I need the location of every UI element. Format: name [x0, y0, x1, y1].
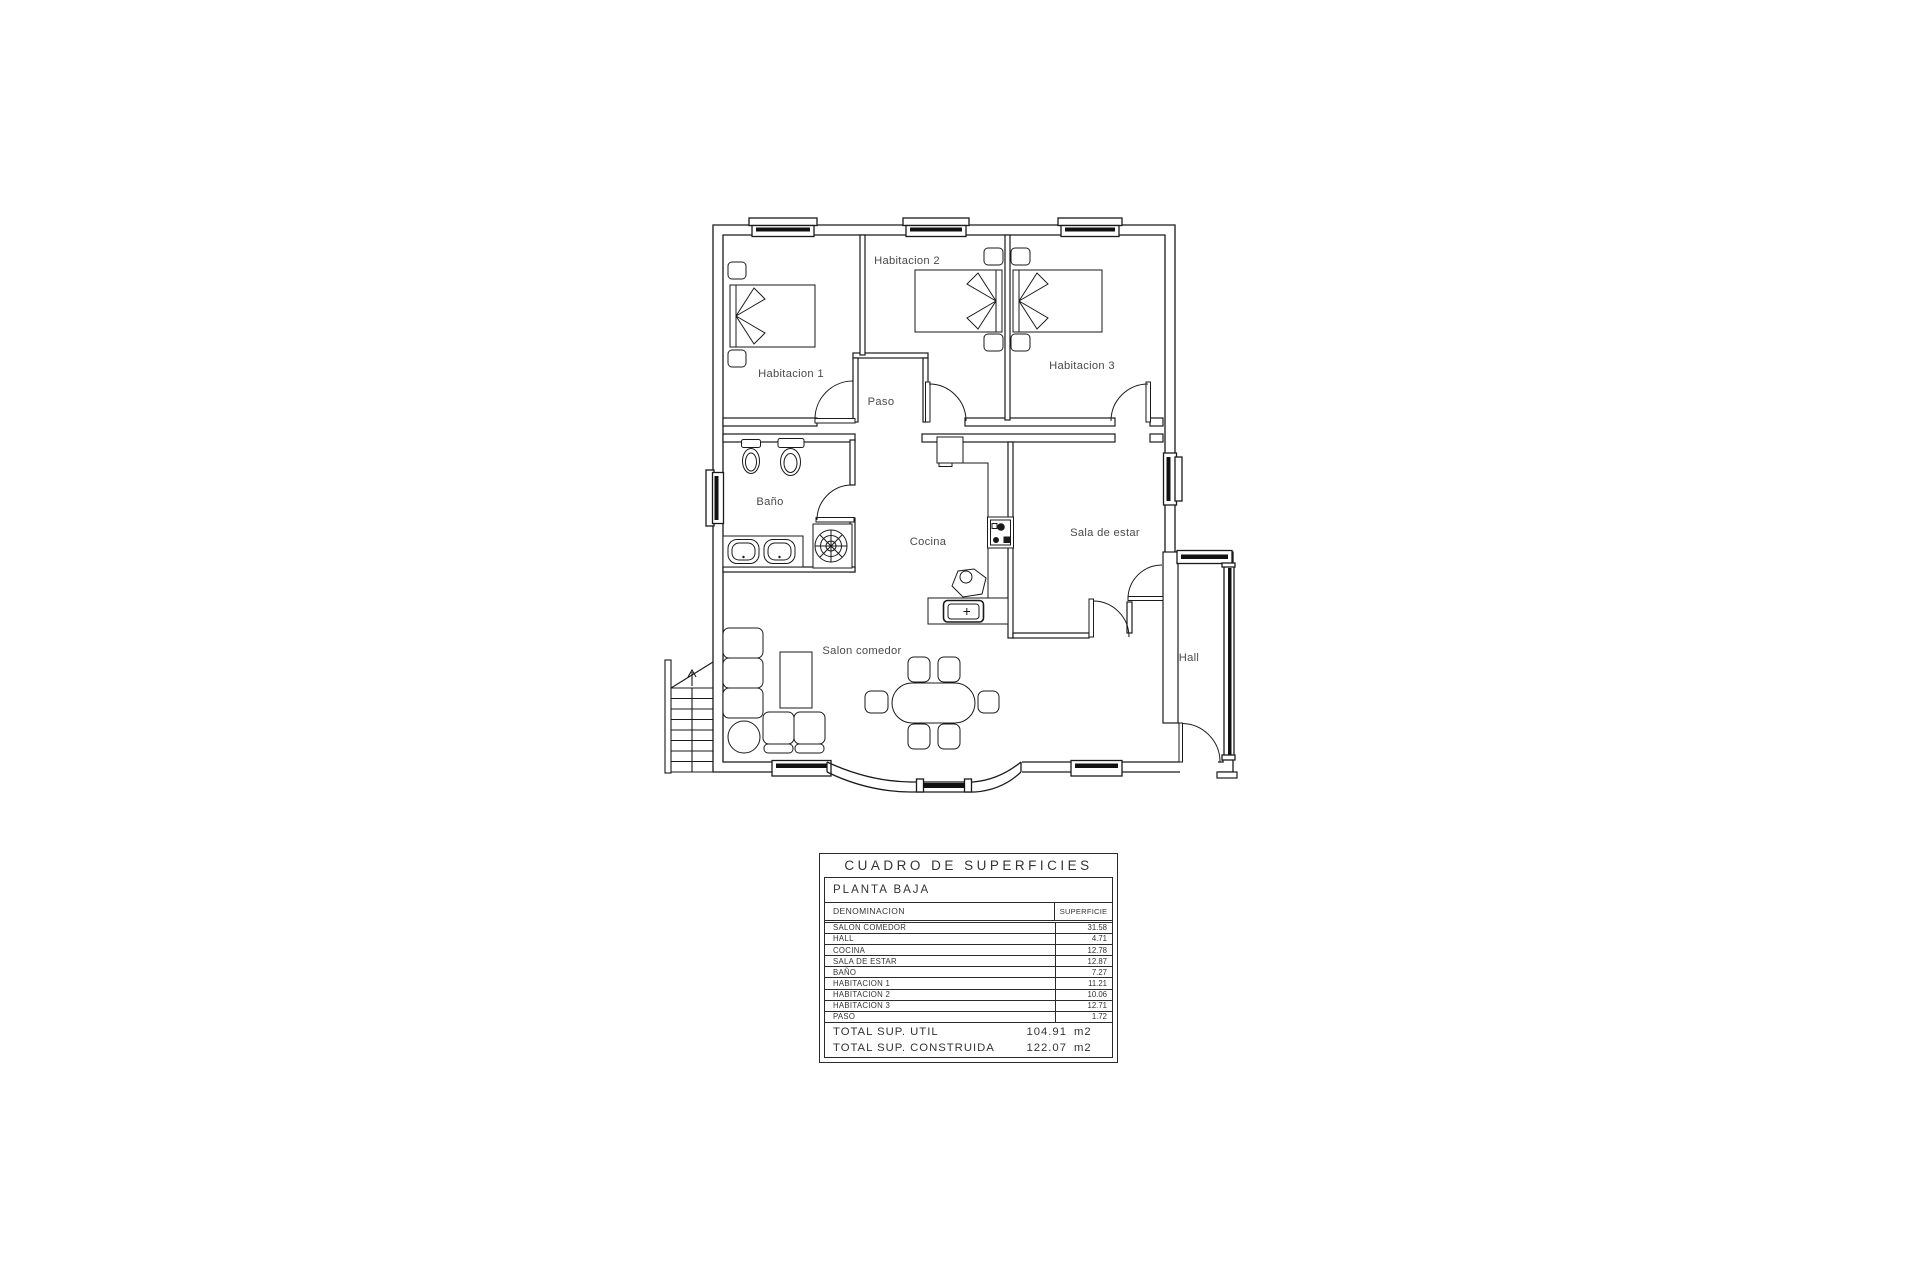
nightstand [728, 262, 746, 279]
chair [865, 691, 888, 713]
surface-row-name: PASO [825, 1012, 1055, 1022]
surface-row-name: HABITACION 1 [825, 978, 1055, 988]
label-habitacion3: Habitacion 3 [1049, 360, 1115, 372]
page: Habitacion 1 Habitacion 2 Habitacion 3 P… [0, 0, 1920, 1280]
window-hall-right [1222, 563, 1235, 760]
nightstand [984, 248, 1003, 265]
nightstand [984, 334, 1003, 351]
total-util: TOTAL SUP. UTIL 104.91 m2 [833, 1024, 1104, 1040]
surface-table: CUADRO DE SUPERFICIES PLANTA BAJA DENOMI… [819, 853, 1118, 1063]
label-cocina: Cocina [910, 536, 947, 548]
sink-counter [723, 536, 803, 567]
fridge-icon [937, 437, 963, 467]
surface-row-value: 11.21 [1055, 978, 1112, 988]
dining-table [892, 683, 975, 723]
bed-habitacion1 [728, 262, 815, 367]
surface-row: HABITACION 111.21 [825, 978, 1112, 989]
surface-row-name: HABITACION 3 [825, 1001, 1055, 1011]
chair [978, 691, 999, 713]
surface-row-value: 12.71 [1055, 1001, 1112, 1011]
surface-row: BAÑO7.27 [825, 967, 1112, 978]
door-entrance [1179, 723, 1220, 762]
door-sala-hall [1128, 565, 1163, 601]
surface-row-name: SALA DE ESTAR [825, 956, 1055, 966]
surface-row-value: 7.27 [1055, 967, 1112, 977]
column-superficie: SUPERFICIE [1054, 903, 1112, 920]
surface-table-body: PLANTA BAJA DENOMINACION SUPERFICIE SALO… [824, 877, 1113, 1058]
surface-table-title: CUADRO DE SUPERFICIES [820, 854, 1117, 877]
surface-table-totals: TOTAL SUP. UTIL 104.91 m2 TOTAL SUP. CON… [825, 1023, 1112, 1057]
chair [908, 724, 930, 749]
column-denominacion: DENOMINACION [825, 903, 1054, 920]
surface-row: COCINA12.78 [825, 945, 1112, 956]
surface-table-rows: SALON COMEDOR31.58HALL4.71COCINA12.78SAL… [825, 923, 1112, 1023]
door-bano [816, 485, 854, 522]
door-habitacion2 [926, 382, 967, 422]
label-sala: Sala de estar [1070, 527, 1140, 539]
nightstand [1011, 334, 1030, 351]
kitchen-fixtures [928, 437, 1014, 624]
kitchen-sink-icon [928, 569, 1008, 624]
door-habitacion3 [1111, 382, 1151, 422]
ottoman [728, 721, 760, 753]
window-top-1 [749, 218, 817, 237]
floor-plan: Habitacion 1 Habitacion 2 Habitacion 3 P… [0, 0, 1920, 1280]
total-construida-label: TOTAL SUP. CONSTRUIDA [833, 1042, 1013, 1054]
surface-row-name: BAÑO [825, 967, 1055, 977]
surface-row-name: HABITACION 2 [825, 990, 1055, 1000]
window-hall-top [1177, 551, 1232, 564]
surface-row: SALA DE ESTAR12.87 [825, 956, 1112, 967]
surface-row-name: HALL [825, 934, 1055, 944]
total-util-label: TOTAL SUP. UTIL [833, 1026, 1013, 1038]
label-paso: Paso [868, 396, 895, 408]
total-construida-unit: m2 [1067, 1042, 1104, 1054]
surface-table-header: DENOMINACION SUPERFICIE [825, 903, 1112, 923]
shower-icon [813, 524, 852, 568]
window-bottom-left [772, 761, 831, 777]
door-habitacion1 [815, 381, 855, 423]
surface-row-value: 31.58 [1055, 923, 1112, 933]
surface-row: PASO1.72 [825, 1012, 1112, 1023]
door-salon-sala [1089, 599, 1129, 637]
label-hall: Hall [1179, 652, 1199, 664]
bidet-icon [778, 439, 804, 476]
stairs-arrow-icon [688, 670, 696, 686]
label-habitacion1: Habitacion 1 [758, 368, 824, 380]
surface-row: SALON COMEDOR31.58 [825, 923, 1112, 934]
surface-row-value: 10.06 [1055, 990, 1112, 1000]
window-sala-right [1164, 453, 1183, 505]
window-bottom-right [1071, 761, 1122, 777]
chair [938, 657, 960, 682]
bathroom-fixtures [723, 439, 852, 569]
total-util-unit: m2 [1067, 1026, 1104, 1038]
surface-row-value: 12.87 [1055, 956, 1112, 966]
surface-row-value: 1.72 [1055, 1012, 1112, 1022]
chair [908, 657, 930, 682]
total-construida-value: 122.07 [1013, 1042, 1067, 1054]
surface-row: HABITACION 312.71 [825, 1001, 1112, 1012]
bed-habitacion3 [1011, 248, 1102, 351]
surface-row-name: COCINA [825, 945, 1055, 955]
window-top-3 [1058, 218, 1122, 237]
label-salon: Salon comedor [822, 645, 901, 657]
surface-row-name: SALON COMEDOR [825, 923, 1055, 933]
surface-table-floor: PLANTA BAJA [825, 878, 1112, 903]
chair [938, 724, 960, 749]
window-top-2 [903, 218, 969, 237]
stove-icon [988, 517, 1014, 548]
total-construida: TOTAL SUP. CONSTRUIDA 122.07 m2 [833, 1040, 1104, 1056]
toilet-icon [742, 440, 761, 474]
coffee-table [780, 652, 812, 708]
surface-row: HABITACION 210.06 [825, 990, 1112, 1001]
stairs [665, 660, 713, 773]
dining-set [865, 657, 999, 749]
label-bano: Baño [756, 496, 783, 508]
label-habitacion2: Habitacion 2 [874, 255, 940, 267]
surface-row-value: 4.71 [1055, 934, 1112, 944]
window-bath-left [706, 470, 724, 526]
nightstand [1011, 248, 1030, 265]
surface-row: HALL4.71 [825, 934, 1112, 945]
surface-row-value: 12.78 [1055, 945, 1112, 955]
nightstand [728, 350, 746, 367]
total-util-value: 104.91 [1013, 1026, 1067, 1038]
